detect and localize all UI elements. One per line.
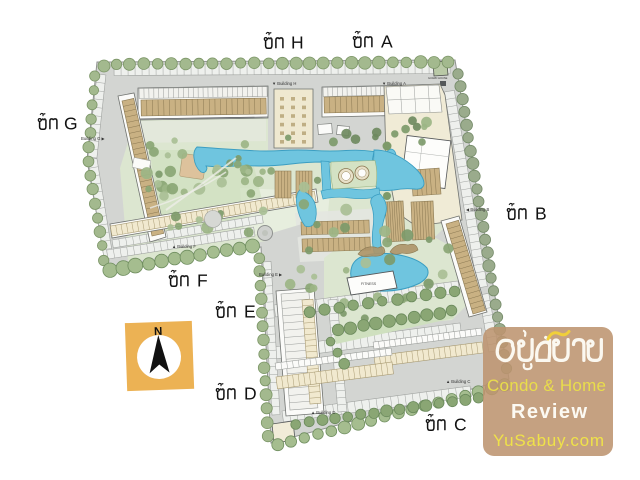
svg-text:Review: Review [511,401,587,423]
svg-text:GUARD HOUSE: GUARD HOUSE [428,76,448,80]
svg-text:▲ Building F: ▲ Building F [172,244,196,249]
svg-text:N: N [154,326,163,338]
svg-text:▼ Building A: ▼ Building A [382,81,406,86]
svg-text:▲ Building D: ▲ Building D [311,410,335,415]
svg-text:H: H [291,32,304,52]
svg-text:C: C [454,414,467,434]
svg-text:▼ Building H: ▼ Building H [272,81,296,86]
svg-text:▲ Building C: ▲ Building C [446,379,470,384]
svg-text:A: A [381,31,393,51]
svg-text:G: G [64,113,78,133]
svg-text:E: E [244,301,256,321]
svg-text:Building G ▶: Building G ▶ [81,136,105,141]
svg-text:D: D [244,383,257,403]
svg-text:B: B [535,203,547,223]
svg-text:◀ Building B: ◀ Building B [466,207,489,212]
svg-text:Condo & Home: Condo & Home [487,376,606,395]
svg-text:YuSabuy.com: YuSabuy.com [493,431,604,450]
svg-text:FITNESS: FITNESS [361,282,377,286]
svg-text:F: F [197,270,208,290]
svg-text:Building E ▶: Building E ▶ [259,272,283,277]
